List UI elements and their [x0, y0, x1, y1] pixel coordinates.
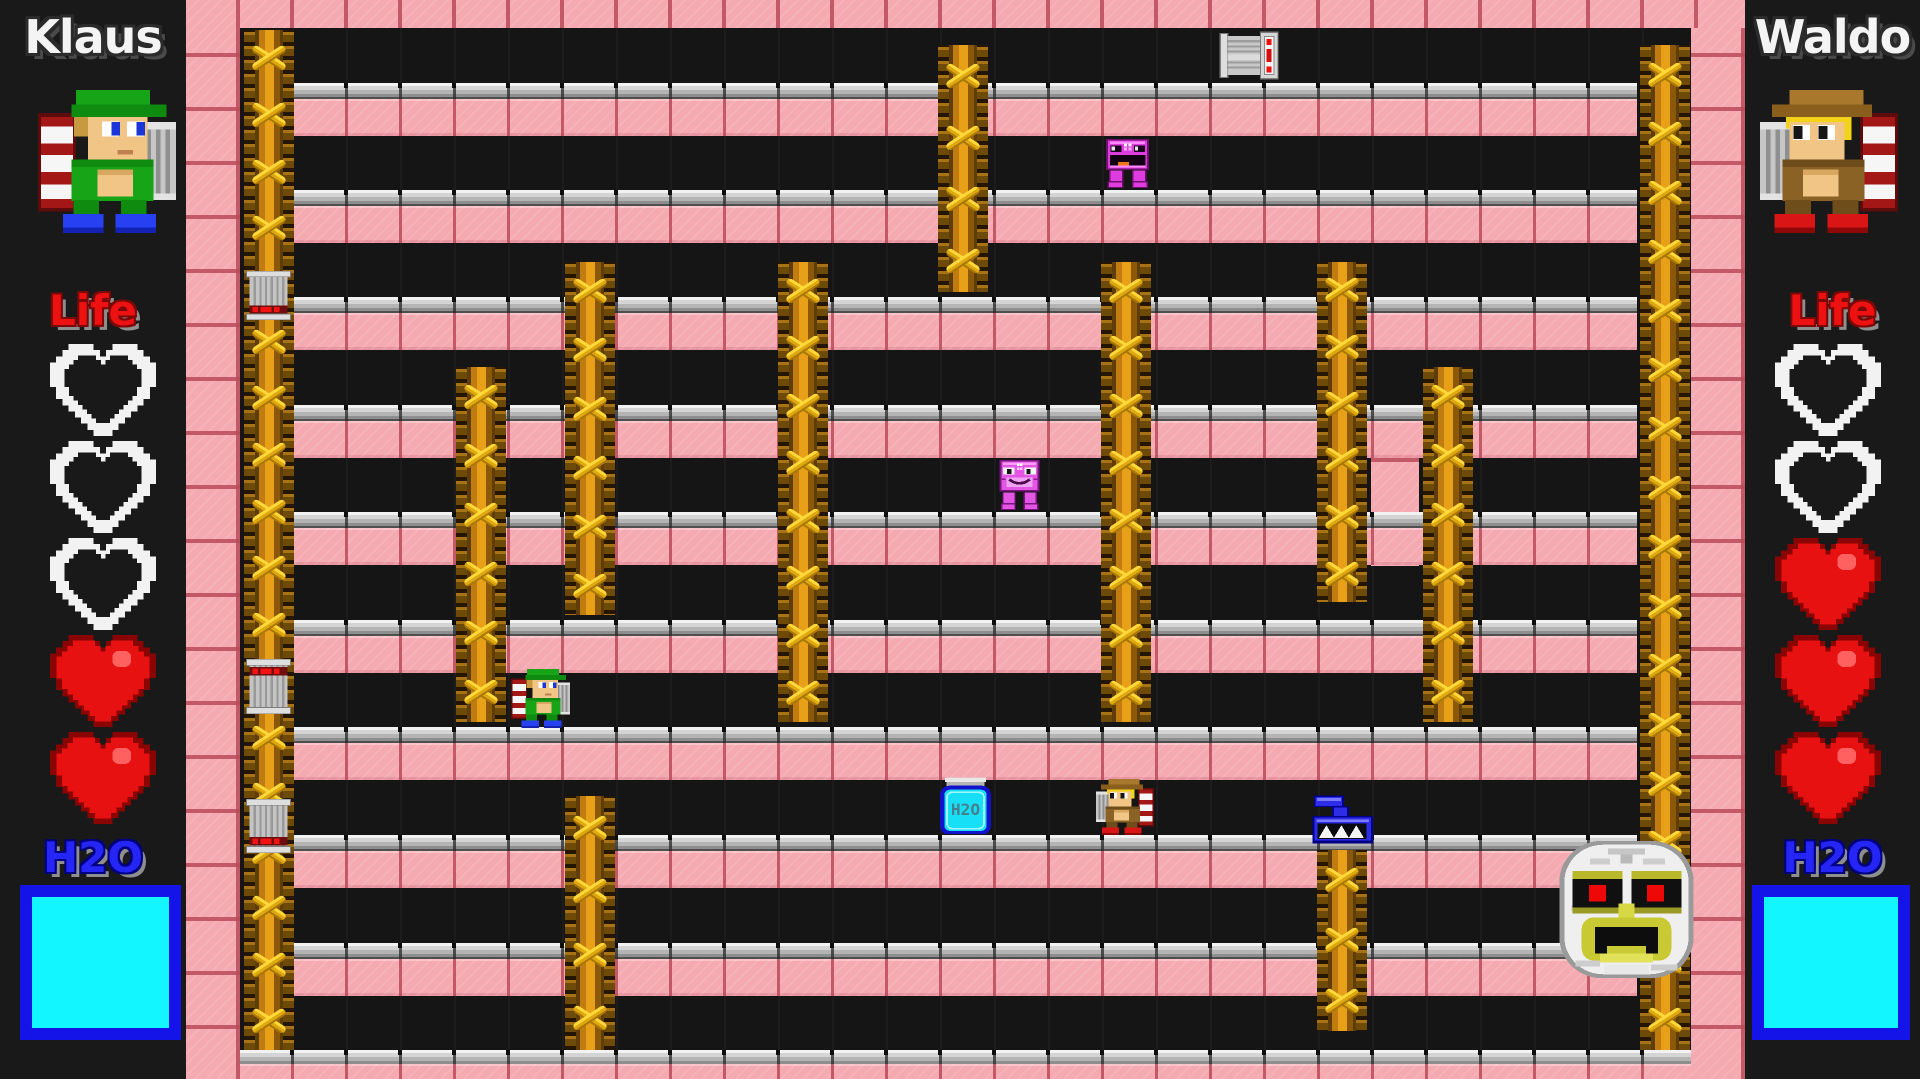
ladder — [1423, 367, 1473, 722]
ladder — [778, 262, 828, 722]
ladder-rung-icon — [1647, 654, 1683, 678]
ladder-rung-icon — [1647, 772, 1683, 796]
ladder-rung-icon — [1647, 595, 1683, 619]
water-bottle-item[interactable]: H2O — [936, 777, 995, 834]
ladder-rung-icon — [572, 943, 608, 967]
ladder — [565, 796, 615, 1050]
floor-platform — [240, 1050, 1691, 1079]
ladder-rung-icon — [1108, 336, 1144, 360]
platform-brick — [294, 743, 1637, 780]
ladder-rung-icon — [1430, 680, 1466, 704]
water-meter — [20, 885, 181, 1040]
ladder-rung-icon — [785, 394, 821, 418]
ladder-rung-icon — [251, 953, 287, 977]
platform-brick — [294, 959, 1637, 996]
floor-platform — [294, 727, 1637, 780]
ladder-rung-icon — [1108, 624, 1144, 648]
ladder — [1317, 262, 1367, 602]
ladder-rung-icon — [1324, 278, 1360, 302]
ladder-rung-icon — [785, 566, 821, 590]
ladder-rung-icon — [463, 680, 499, 704]
ladder-rung-icon — [572, 397, 608, 421]
ladder-rung-icon — [1430, 621, 1466, 645]
ladder-rung-icon — [1647, 476, 1683, 500]
ladder-rung-icon — [251, 160, 287, 184]
heart-full — [1775, 635, 1881, 727]
water-meter-fill — [1764, 897, 1898, 1028]
ladder-rung-icon — [1647, 63, 1683, 87]
ladder-rung-icon — [463, 503, 499, 527]
ladder-rung-icon — [572, 1006, 608, 1030]
ladder — [565, 262, 615, 615]
ladder-rung-icon — [1324, 335, 1360, 359]
ladder-rung-icon — [572, 574, 608, 598]
ladder — [456, 367, 506, 722]
heart-empty — [1775, 441, 1881, 533]
bucket-item[interactable] — [243, 799, 294, 853]
ladder-rung-icon — [1647, 713, 1683, 737]
ladder-rung-icon — [1108, 681, 1144, 705]
ladder-rung-icon — [785, 681, 821, 705]
ladder-rung-icon — [251, 1009, 287, 1033]
platform-top — [294, 943, 1637, 959]
ladder — [938, 45, 988, 292]
mummy-boss[interactable] — [1545, 831, 1708, 988]
ladder-rung-icon — [785, 624, 821, 648]
ladder-rung-icon — [251, 443, 287, 467]
player-name: Klaus — [0, 10, 186, 64]
ladder-rung-icon — [785, 336, 821, 360]
heart-empty — [1775, 344, 1881, 436]
ladder-rung-icon — [463, 621, 499, 645]
heart-full — [50, 635, 156, 727]
enemy-tank[interactable] — [1309, 791, 1392, 850]
ladder-rung-icon — [1108, 566, 1144, 590]
ladder-rung-icon — [572, 515, 608, 539]
ladder-rung-icon — [1324, 928, 1360, 952]
platform-top — [240, 1050, 1691, 1064]
bucket-item[interactable] — [243, 271, 294, 320]
ladder-rung-icon — [572, 456, 608, 480]
ladder-rung-icon — [1647, 181, 1683, 205]
heart-empty — [50, 441, 156, 533]
heart-full — [1775, 732, 1881, 824]
ladder-rung-icon — [945, 64, 981, 88]
ladder-rung-icon — [251, 726, 287, 750]
ladder-rung-icon — [251, 896, 287, 920]
player-name: Waldo — [1745, 10, 1920, 64]
game-screen: Klaus Life H2O H2O Waldo Life H2O — [0, 0, 1920, 1079]
ladder-rung-icon — [1647, 1008, 1683, 1032]
ladder-rung-icon — [945, 126, 981, 150]
ladder-rung-icon — [785, 451, 821, 475]
ladder-rung-icon — [785, 279, 821, 303]
platform-brick — [240, 1064, 1691, 1079]
heart-full — [1775, 538, 1881, 630]
h2o-label: H2O — [1745, 833, 1920, 882]
ladder-rung-icon — [1324, 989, 1360, 1013]
floor-platform — [294, 835, 1637, 888]
ladder-rung-icon — [1108, 394, 1144, 418]
floor-platform — [294, 943, 1637, 996]
platform-top — [294, 297, 1637, 313]
ladder — [1101, 262, 1151, 722]
bucket-item[interactable] — [243, 659, 294, 714]
ladder-rung-icon — [1647, 417, 1683, 441]
ladder-rung-icon — [1324, 868, 1360, 892]
ladder-rung-icon — [251, 500, 287, 524]
playfield[interactable]: H2O — [186, 0, 1745, 1079]
klaus-portrait-sprite — [38, 90, 176, 233]
ladder-rung-icon — [1430, 444, 1466, 468]
ladder-rung-icon — [1430, 385, 1466, 409]
enemy-robot-cat[interactable] — [992, 454, 1047, 513]
water-meter — [1752, 885, 1910, 1040]
enemy-robot-tongue[interactable] — [1098, 133, 1157, 191]
ladder-rung-icon — [785, 509, 821, 533]
ladder-rung-icon — [251, 103, 287, 127]
ladder-rung-icon — [1324, 505, 1360, 529]
ladder-rung-icon — [463, 562, 499, 586]
ladder-rung-icon — [1647, 122, 1683, 146]
ladder-rung-icon — [1108, 509, 1144, 533]
floor-platform — [294, 297, 1637, 350]
ladder-rung-icon — [572, 879, 608, 903]
life-hearts — [1775, 344, 1881, 824]
platform-top — [294, 835, 1637, 851]
waldo-portrait-sprite — [1760, 90, 1898, 233]
ladder-rung-icon — [1430, 503, 1466, 527]
ladder — [244, 30, 294, 1050]
ladder-rung-icon — [572, 338, 608, 362]
ladder-rung-icon — [1647, 535, 1683, 559]
ladder-rung-icon — [1324, 562, 1360, 586]
ladder-rung-icon — [572, 816, 608, 840]
ladder-rung-icon — [463, 444, 499, 468]
ladder — [1317, 850, 1367, 1031]
ladder-rung-icon — [1108, 451, 1144, 475]
ladder-rung-icon — [251, 556, 287, 580]
ladder-rung-icon — [251, 216, 287, 240]
life-hearts — [50, 344, 156, 824]
ladder-rung-icon — [945, 249, 981, 273]
player-klaus-field[interactable] — [511, 669, 570, 728]
brick-wall — [186, 0, 1745, 28]
ladder-rung-icon — [572, 279, 608, 303]
ladder-rung-icon — [251, 330, 287, 354]
ladder-rung-icon — [1108, 279, 1144, 303]
ladder-rung-icon — [251, 613, 287, 637]
ladder-rung-icon — [251, 46, 287, 70]
platform-brick — [294, 851, 1637, 888]
heart-empty — [50, 538, 156, 630]
water-meter-fill — [32, 897, 169, 1028]
ladder-rung-icon — [1324, 392, 1360, 416]
ladder-rung-icon — [251, 386, 287, 410]
drum-item[interactable] — [1219, 31, 1281, 80]
bottle-label: H2O — [951, 800, 980, 819]
ladder-rung-icon — [1324, 448, 1360, 472]
ladder-rung-icon — [1647, 299, 1683, 323]
platform-brick — [294, 313, 1637, 350]
platform-top — [294, 727, 1637, 743]
life-label: Life — [0, 286, 186, 335]
ladder-rung-icon — [1430, 562, 1466, 586]
life-label: Life — [1745, 286, 1920, 335]
player-waldo-field[interactable] — [1096, 779, 1154, 835]
player-panel-waldo: Waldo Life H2O — [1745, 0, 1920, 1079]
ladder-rung-icon — [1647, 240, 1683, 264]
ladder-rung-icon — [945, 187, 981, 211]
ladder-rung-icon — [463, 385, 499, 409]
brick-wall — [186, 0, 240, 1079]
heart-empty — [50, 344, 156, 436]
h2o-label: H2O — [0, 833, 186, 882]
player-panel-klaus: Klaus Life H2O — [0, 0, 186, 1079]
ladder-rung-icon — [1647, 358, 1683, 382]
heart-full — [50, 732, 156, 824]
